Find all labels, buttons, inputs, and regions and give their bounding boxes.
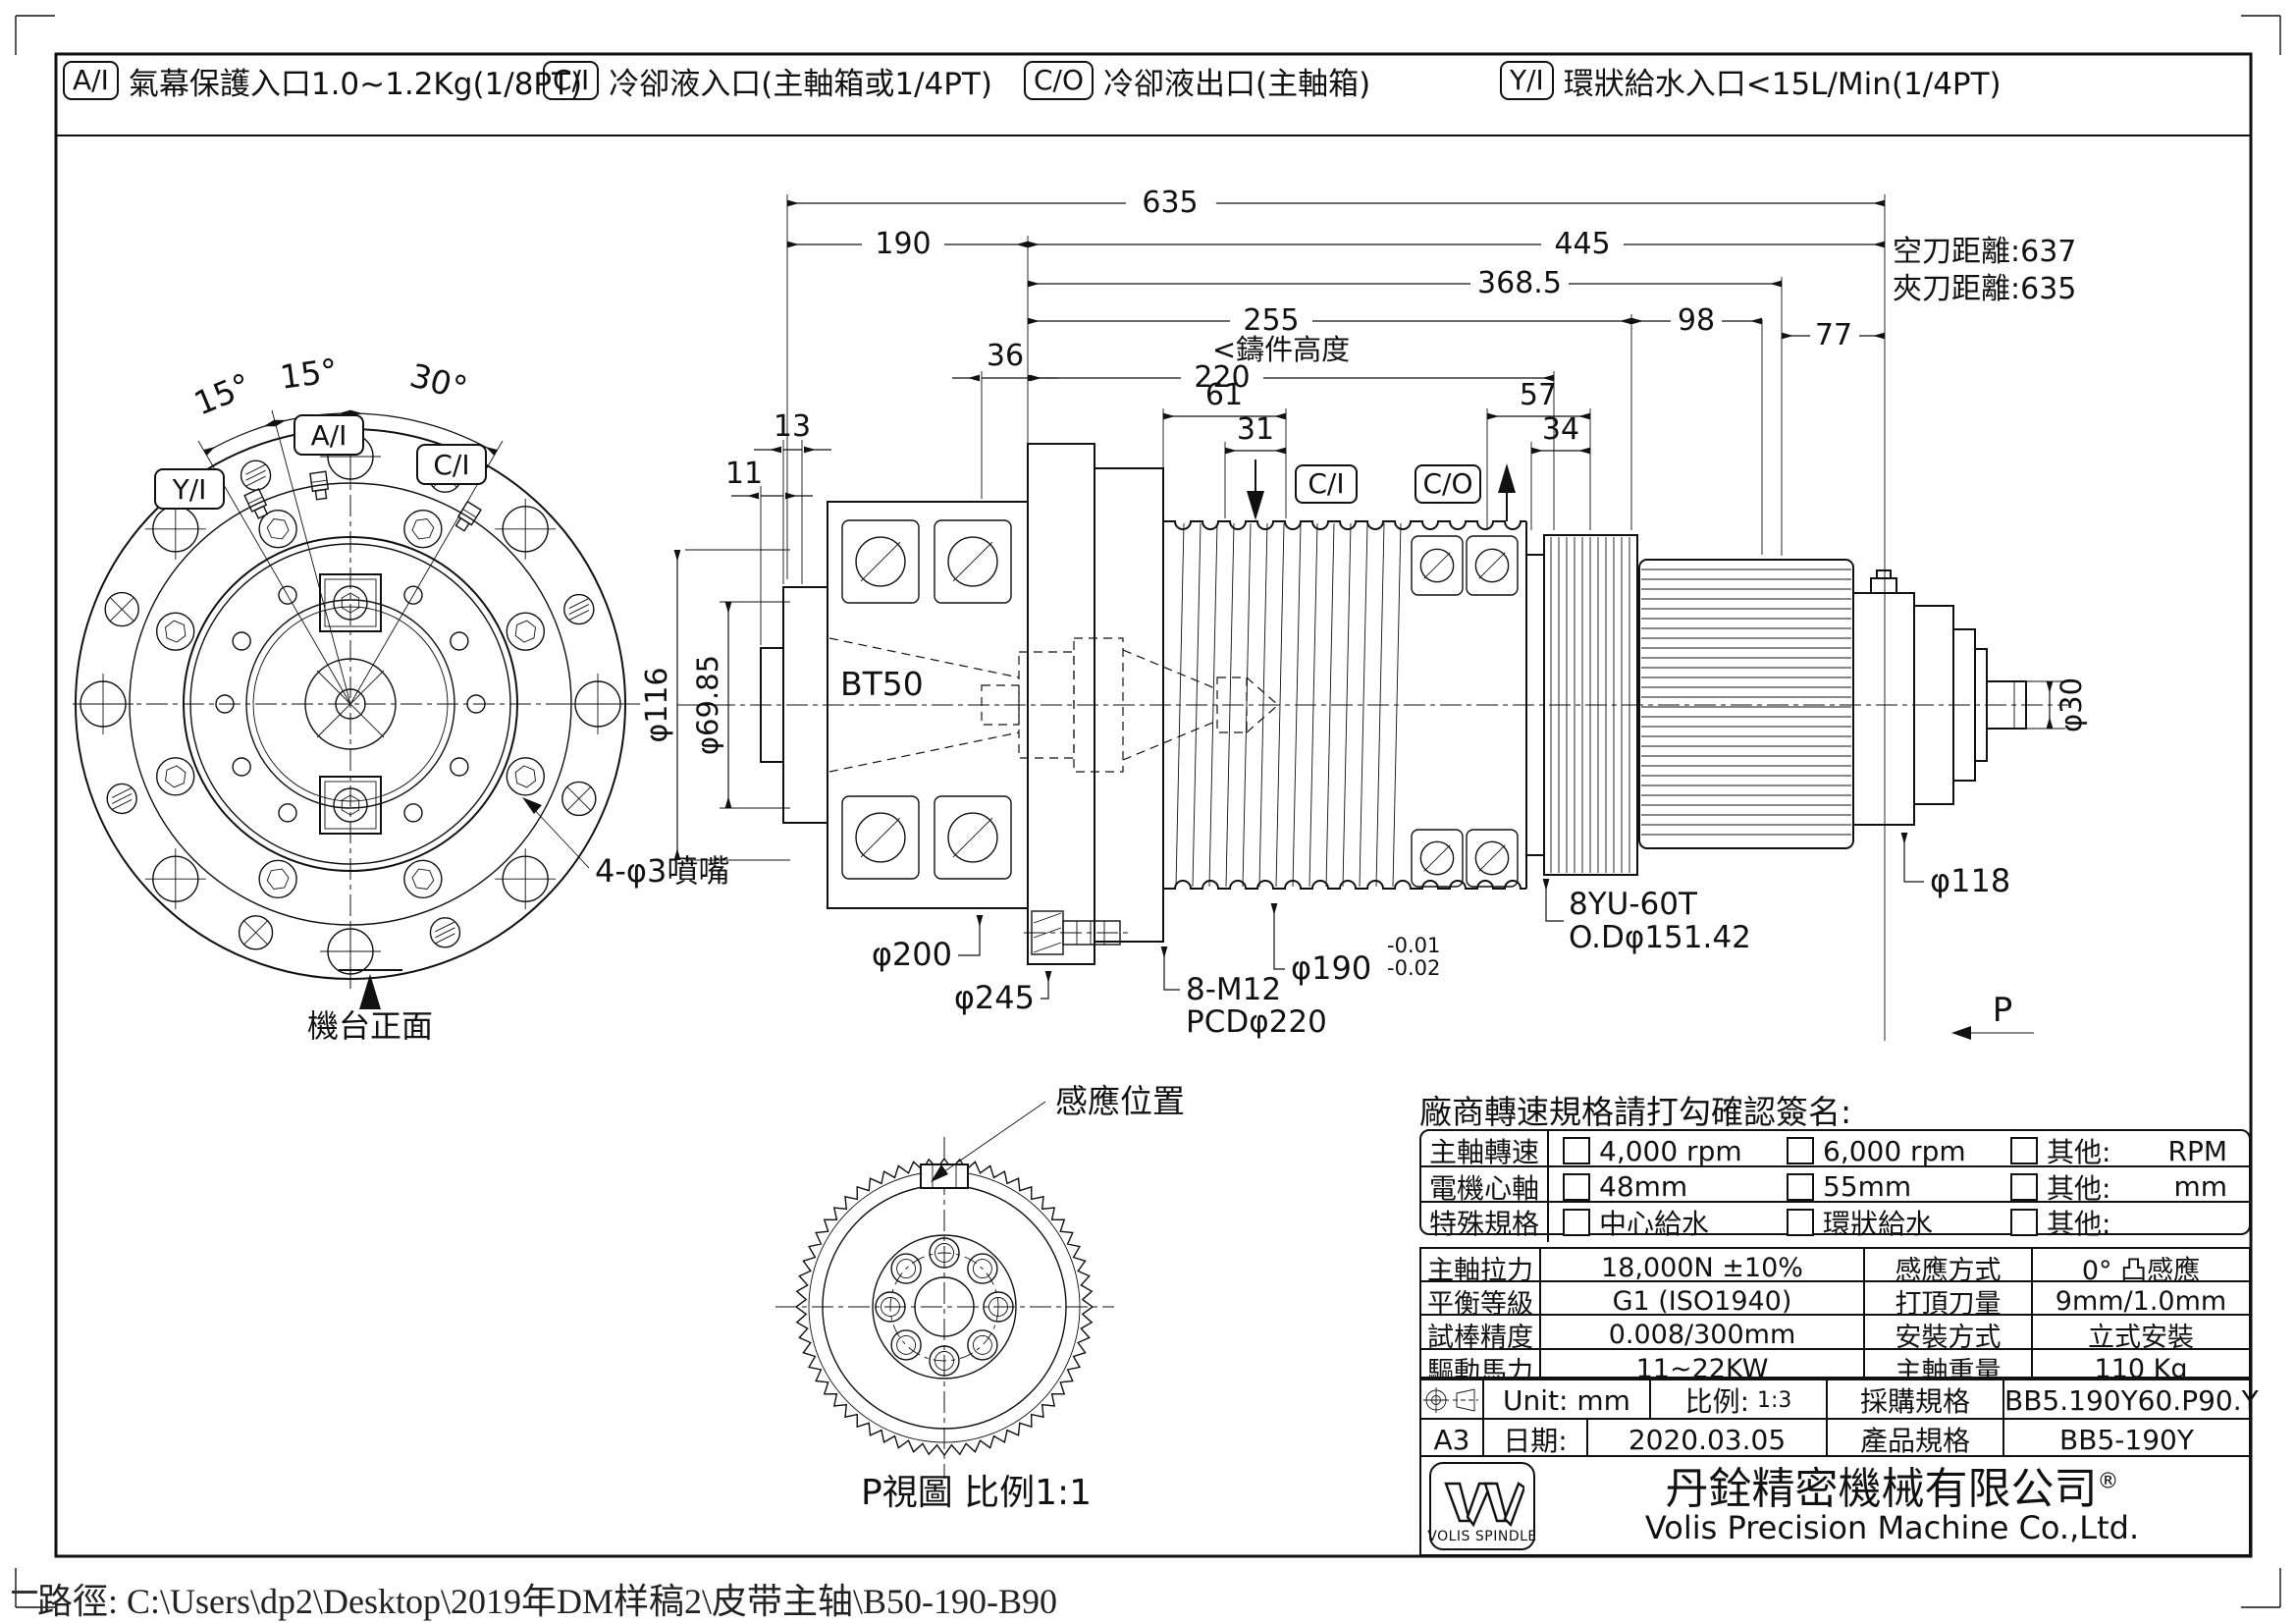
dim-190: 190 xyxy=(875,227,931,261)
nozzle-note: 4-φ3噴嘴 xyxy=(522,797,729,890)
drawing-sheet: 15° 15° 30° Y/I A/I C/I 4-φ3噴嘴 機台正面 xyxy=(0,0,2296,1623)
coolant-ports: C/I C/O xyxy=(1247,460,1516,521)
gear-spec-line2: O.Dφ151.42 xyxy=(1569,920,1751,955)
file-path: 路徑: C:\Users\dp2\Desktop\2019年DM样稿2\皮带主轴… xyxy=(37,1573,1057,1623)
dim-31: 31 xyxy=(1237,412,1274,447)
coolant-in-arrow xyxy=(1247,491,1264,520)
checkbox-6000rpm xyxy=(1787,1137,1814,1164)
sensor-position-label: 感應位置 xyxy=(1055,1082,1185,1120)
dim-13: 13 xyxy=(774,409,811,444)
registered-mark: ® xyxy=(2098,1469,2119,1493)
angle-label-15-mid: 15° xyxy=(278,351,340,396)
air-cut-distance: 空刀距離:637 xyxy=(1893,235,2076,269)
machine-front-text: 機台正面 xyxy=(307,1007,433,1045)
option-text: 其他: xyxy=(2047,1203,2110,1242)
side-view: 635 190 445 368.5 255 98 77 220 <鑄件高度 xyxy=(640,186,2088,1041)
p-view-label: P xyxy=(1993,991,2013,1030)
port-desc-co: 冷卻液出口(主軸箱) xyxy=(1103,59,1370,103)
machine-front-symbol: 機台正面 xyxy=(307,970,433,1045)
label-ai: A/I xyxy=(311,419,347,452)
unit-text: RPM xyxy=(2168,1135,2250,1167)
checkbox-other-speed xyxy=(2010,1137,2038,1164)
gear-bolt-hole xyxy=(891,1330,921,1360)
spec-value: G1 (ISO1940) xyxy=(1541,1282,1865,1321)
coolant-out-arrow xyxy=(1498,463,1516,493)
port-tag-co: C/O xyxy=(1024,61,1094,100)
spec-value: 0° 凸感應 xyxy=(2033,1249,2249,1287)
footer-tick xyxy=(12,1591,37,1594)
company-name-cn-text: 丹銓精密機械有限公司 xyxy=(1666,1464,2098,1514)
small-hole xyxy=(451,632,468,650)
dim-dia-30: φ30 xyxy=(2055,677,2088,732)
casting-height-note: <鑄件高度 xyxy=(1212,333,1350,366)
port-tag-ai: A/I xyxy=(63,61,119,100)
spec-label: 打頂刀量 xyxy=(1865,1282,2033,1321)
dim-635: 635 xyxy=(1142,186,1198,220)
small-hole xyxy=(279,804,296,822)
p-view-caption: P視圖 比例1:1 xyxy=(861,1473,1092,1513)
option-text: 中心給水 xyxy=(1599,1203,1709,1242)
screw-hole xyxy=(259,860,296,897)
port-legend-yi: Y/I 環狀給水入口<15L/Min(1/4PT) xyxy=(1500,57,2002,104)
dia-118-label: φ118 xyxy=(1930,862,2010,899)
product-spec-label: 產品規格 xyxy=(1828,1420,2004,1459)
date-label: 日期: xyxy=(1484,1420,1588,1459)
logo-text: VOLIS SPINDLE xyxy=(1427,1529,1536,1544)
purchase-spec-value: BB5.190Y60.P90.Y xyxy=(2004,1380,2259,1420)
scale-value: 1:3 xyxy=(1757,1388,1791,1413)
port-desc-yi: 環狀給水入口<15L/Min(1/4PT) xyxy=(1564,59,2002,103)
small-hole xyxy=(233,758,250,776)
checkbox-other-special xyxy=(2010,1209,2038,1236)
nozzle-note-text: 4-φ3噴嘴 xyxy=(595,852,729,890)
dim-77: 77 xyxy=(1815,318,1852,352)
fins-bottom-edge xyxy=(1163,881,1526,889)
spec-value: 9mm/1.0mm xyxy=(2033,1282,2249,1321)
dim-61: 61 xyxy=(1205,378,1243,412)
order-row-speed: 主軸轉速 4,000 rpm 6,000 rpm 其他:RPM xyxy=(1421,1131,2249,1167)
scale-cell: 比例: 1:3 xyxy=(1651,1380,1828,1420)
gear-bolt-hole xyxy=(968,1330,997,1360)
dim-dia-69-85: φ69.85 xyxy=(691,655,724,755)
port-legend-ci: C/I 冷卻液入口(主軸箱或1/4PT) xyxy=(543,57,992,104)
side-label-ci: C/I xyxy=(1308,467,1344,500)
order-table: 主軸轉速 4,000 rpm 6,000 rpm 其他:RPM 電機心軸 48m… xyxy=(1419,1129,2251,1235)
dim-368-5: 368.5 xyxy=(1477,266,1562,300)
spec-label: 平衡等級 xyxy=(1421,1282,1541,1321)
sheet-size: A3 xyxy=(1421,1420,1484,1459)
dia-190-label: φ190 xyxy=(1291,949,1371,987)
checkbox-48mm xyxy=(1563,1173,1590,1201)
company-block: VOLIS SPINDLE 丹銓精密機械有限公司® Volis Precisio… xyxy=(1419,1455,2251,1556)
port-legend-ai: A/I 氣幕保護入口1.0~1.2Kg(1/8PT) xyxy=(63,57,582,104)
order-label: 特殊規格 xyxy=(1421,1203,1549,1242)
spec-value: 立式安裝 xyxy=(2033,1316,2249,1354)
gear-p-view: 感應位置 P視圖 比例1:1 xyxy=(775,1082,1185,1513)
screw-hole xyxy=(157,758,194,795)
dim-57: 57 xyxy=(1520,378,1557,412)
order-row-motor-shaft: 電機心軸 48mm 55mm 其他:mm xyxy=(1421,1167,2249,1204)
port-tag-ci: C/I xyxy=(543,61,599,100)
label-yi: Y/I xyxy=(172,473,207,506)
checkbox-ring-coolant xyxy=(1787,1209,1814,1236)
spec-label: 主軸拉力 xyxy=(1421,1249,1541,1287)
option-text: 48mm xyxy=(1599,1170,1687,1203)
spec-table: 主軸拉力 18,000N ±10% 感應方式 0° 凸感應 平衡等級 G1 (I… xyxy=(1419,1247,2251,1379)
projection-symbols xyxy=(1421,1380,1484,1420)
option-text: 55mm xyxy=(1823,1170,1911,1203)
checkbox-center-coolant xyxy=(1563,1209,1590,1236)
screw-hole xyxy=(507,758,544,795)
angle-label-30: 30° xyxy=(406,355,472,407)
unit-cell: Unit: mm xyxy=(1484,1380,1651,1420)
m12-note-line2: PCDφ220 xyxy=(1186,1004,1327,1040)
m12-note-line1: 8-M12 xyxy=(1186,972,1281,1007)
side-label-co: C/O xyxy=(1422,467,1472,500)
spec-label: 感應方式 xyxy=(1865,1249,2033,1287)
dia-190-tol-upper: -0.01 xyxy=(1387,934,1440,957)
option-text: 環狀給水 xyxy=(1823,1203,1933,1242)
screw-hole xyxy=(507,613,544,650)
clamp-distance: 夾刀距離:635 xyxy=(1893,272,2076,306)
dia-245-label: φ245 xyxy=(954,979,1035,1016)
projection-icons xyxy=(1423,1385,1480,1415)
checkbox-other-shaft xyxy=(2010,1173,2038,1201)
order-table-title: 廠商轉速規格請打勾確認簽名: xyxy=(1419,1086,1851,1133)
front-cap xyxy=(1853,593,1914,825)
small-hole xyxy=(404,804,422,822)
dim-11: 11 xyxy=(725,457,763,491)
title-block: Unit: mm 比例: 1:3 採購規格 BB5.190Y60.P90.Y A… xyxy=(1419,1379,2251,1455)
dim-98: 98 xyxy=(1678,303,1715,338)
company-logo: VOLIS SPINDLE xyxy=(1429,1462,1535,1550)
p-view-arrow xyxy=(1951,1026,1971,1040)
unit-text: mm xyxy=(2173,1170,2249,1203)
screw-hole xyxy=(404,511,442,548)
port-desc-ai: 氣幕保護入口1.0~1.2Kg(1/8PT) xyxy=(129,59,582,103)
dim-36: 36 xyxy=(987,339,1024,373)
vv-logo-icon xyxy=(1440,1478,1524,1529)
scale-label: 比例: xyxy=(1685,1380,1749,1420)
fins-top-edge xyxy=(1163,521,1526,529)
screw-hole xyxy=(404,860,442,897)
label-ci: C/I xyxy=(433,449,469,481)
front-view: 15° 15° 30° Y/I A/I C/I 4-φ3噴嘴 機台正面 xyxy=(73,351,729,1045)
spec-value: 18,000N ±10% xyxy=(1541,1249,1865,1287)
small-hole xyxy=(233,632,250,650)
angle-dimensions: 15° 15° 30° xyxy=(188,351,503,704)
option-text: 4,000 rpm xyxy=(1599,1135,1742,1167)
spec-value: 0.008/300mm xyxy=(1541,1316,1865,1354)
dia-200-label: φ200 xyxy=(872,936,952,973)
mounting-flange xyxy=(1028,444,1095,964)
bt50-label: BT50 xyxy=(840,665,924,703)
screw-hole xyxy=(157,613,194,650)
company-name-en: Volis Precision Machine Co.,Ltd. xyxy=(1645,1512,2139,1545)
sensor-dog xyxy=(921,1164,968,1188)
front-view-port-labels: Y/I A/I C/I xyxy=(155,415,486,509)
spec-label: 試棒精度 xyxy=(1421,1316,1541,1354)
dim-445: 445 xyxy=(1554,227,1610,261)
option-text: 其他: xyxy=(2047,1131,2110,1170)
product-spec-value: BB5-190Y xyxy=(2004,1420,2249,1459)
dim-dia-116: φ116 xyxy=(640,667,674,742)
port-desc-ci: 冷卻液入口(主軸箱或1/4PT) xyxy=(609,59,992,103)
checkbox-55mm xyxy=(1787,1173,1814,1201)
order-label: 電機心軸 xyxy=(1421,1167,1549,1207)
angle-label-15-left: 15° xyxy=(188,365,256,422)
date-value: 2020.03.05 xyxy=(1588,1420,1828,1459)
dia-190-tol-lower: -0.02 xyxy=(1387,956,1440,980)
order-label: 主軸轉速 xyxy=(1421,1131,1549,1170)
option-text: 6,000 rpm xyxy=(1823,1135,1966,1167)
order-row-special: 特殊規格 中心給水 環狀給水 其他: xyxy=(1421,1203,2249,1237)
port-legend-co: C/O 冷卻液出口(主軸箱) xyxy=(1024,57,1370,104)
company-name-cn: 丹銓精密機械有限公司® xyxy=(1666,1467,2119,1512)
checkbox-4000rpm xyxy=(1563,1137,1590,1164)
small-hole xyxy=(451,758,468,776)
spec-label: 安裝方式 xyxy=(1865,1316,2033,1354)
dim-34: 34 xyxy=(1542,412,1579,447)
option-text: 其他: xyxy=(2047,1167,2110,1207)
gear-spec-line1: 8YU-60T xyxy=(1569,887,1698,922)
purchase-spec-label: 採購規格 xyxy=(1828,1380,2004,1420)
port-tag-yi: Y/I xyxy=(1500,61,1554,100)
